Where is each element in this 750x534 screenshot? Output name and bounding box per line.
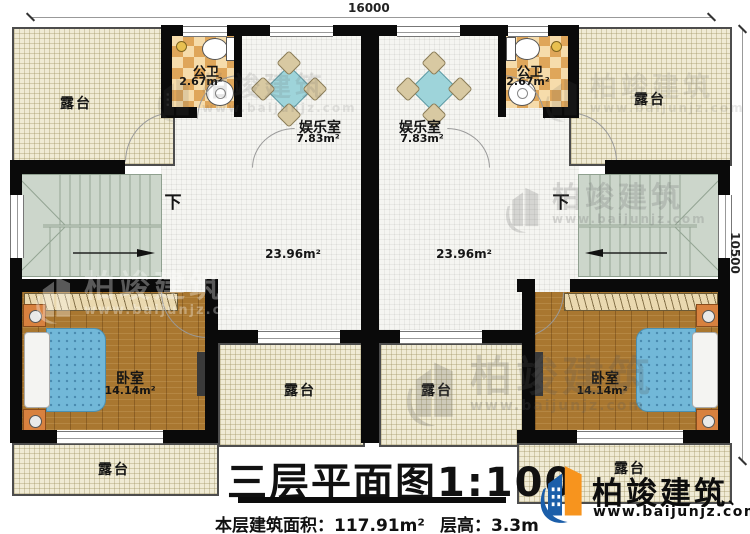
wall (10, 279, 170, 292)
wall (10, 258, 22, 279)
window (183, 26, 227, 37)
room-label-terrace: 露台 (407, 380, 467, 400)
room-label-terrace: 露台 (620, 89, 680, 109)
wall (340, 330, 361, 343)
wardrobe-icon (24, 293, 178, 311)
party-wall (361, 25, 379, 443)
wall (218, 330, 258, 343)
wall (379, 330, 400, 343)
wall (548, 25, 579, 36)
staircase-left (15, 174, 162, 277)
toilet-tank-icon (506, 37, 516, 61)
wardrobe-icon (564, 293, 718, 311)
floor-area-text: 本层建筑面积：117.91m² (215, 511, 425, 534)
room-label-terrace: 露台 (46, 93, 106, 113)
wall (10, 174, 22, 195)
wall (517, 430, 577, 443)
stairs-down-label: 下 (551, 188, 571, 213)
nightstand-icon (696, 409, 719, 432)
window (270, 26, 333, 37)
wall (10, 430, 57, 443)
wall (163, 430, 218, 443)
room-area-entertainment: 7.83m² (392, 132, 452, 145)
room-area-entertainment: 7.83m² (288, 132, 348, 145)
staircase-right (578, 174, 725, 277)
nightstand-icon (23, 304, 46, 327)
room-area-bathroom: 2.67m² (498, 75, 558, 88)
room-label-terrace: 露台 (270, 380, 330, 400)
window (508, 26, 548, 37)
nightstand-icon (23, 409, 46, 432)
window (10, 195, 24, 258)
wall (522, 279, 535, 443)
title-underline (238, 497, 506, 503)
room-area-bedroom: 14.14m² (572, 384, 632, 397)
room-label-terrace: 露台 (84, 459, 144, 479)
shower-head-icon (176, 41, 187, 52)
dimension-line-right (742, 30, 743, 462)
window (57, 431, 163, 444)
wall (10, 160, 125, 174)
wall (605, 160, 730, 174)
shower-head-icon (551, 41, 562, 52)
wall (161, 107, 197, 118)
bed-icon (46, 328, 106, 412)
wall (460, 25, 508, 36)
wall (683, 430, 730, 443)
window (258, 331, 340, 344)
wall (568, 36, 579, 117)
room-area-bedroom: 14.14m² (100, 384, 160, 397)
wall (161, 25, 183, 36)
toilet-icon (202, 38, 228, 60)
window (400, 331, 482, 344)
dimension-line-top (30, 17, 712, 18)
stairs-down-label: 下 (163, 188, 183, 213)
dimension-height: 10500 (728, 232, 742, 274)
tv-icon (535, 352, 543, 396)
toilet-icon (514, 38, 540, 60)
brand-url: www.baijunjz.com (593, 504, 750, 520)
window (577, 431, 683, 444)
tv-icon (197, 352, 205, 396)
wall (570, 279, 730, 292)
pillow-icon (692, 332, 718, 408)
wall (205, 279, 218, 443)
wall (718, 292, 730, 430)
hall-area-label: 23.96m² (263, 247, 323, 261)
wall (227, 25, 270, 36)
floor-plan-canvas: 露台 露台 露台 露台 露台 露台 公卫 2.67m² 公卫 2.67m² 娱乐… (0, 0, 750, 534)
nightstand-icon (696, 304, 719, 327)
brand-logo-icon (534, 460, 590, 528)
pillow-icon (24, 332, 50, 408)
floor-height-text: 层高：3.3m (440, 511, 539, 534)
wall (10, 292, 22, 430)
wall (482, 330, 522, 343)
wall (718, 174, 730, 195)
hall-area-label: 23.96m² (434, 247, 494, 261)
wall (543, 107, 579, 118)
room-area-bathroom: 2.67m² (171, 75, 231, 88)
dimension-width: 16000 (348, 1, 390, 15)
window (397, 26, 460, 37)
bed-icon (636, 328, 696, 412)
